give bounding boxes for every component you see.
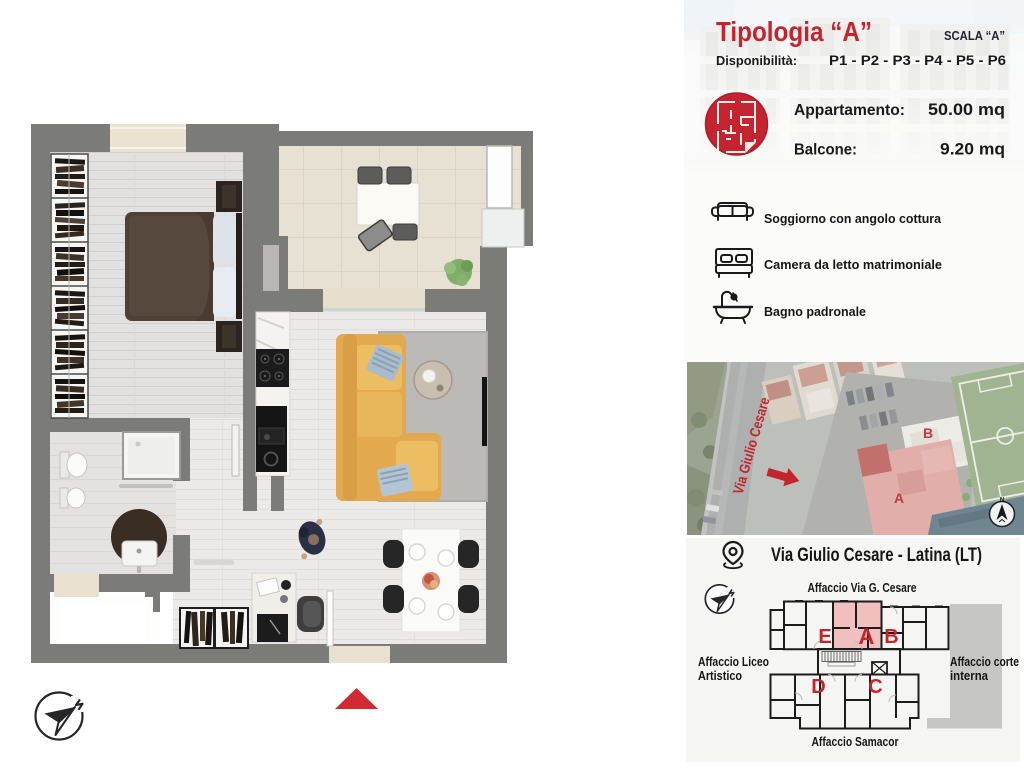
svg-text:A: A [894,490,904,506]
svg-text:Appartamento:: Appartamento: [794,102,905,119]
svg-text:Disponibilità:: Disponibilità: [716,54,797,68]
svg-text:Affaccio Liceo: Affaccio Liceo [698,654,769,669]
svg-text:50.00 mq: 50.00 mq [928,100,1005,119]
svg-text:Soggiorno con angolo cottura: Soggiorno con angolo cottura [764,211,942,226]
svg-text:interna: interna [950,668,989,683]
svg-text:Via Giulio Cesare - Latina (LT: Via Giulio Cesare - Latina (LT) [771,545,982,566]
svg-text:B: B [923,425,933,441]
svg-text:Affaccio corte: Affaccio corte [950,654,1019,669]
svg-text:Bagno padronale: Bagno padronale [764,304,866,319]
svg-text:Artistico: Artistico [698,668,742,683]
svg-text:Balcone:: Balcone: [794,142,857,159]
svg-text:Tipologia “A”: Tipologia “A” [716,16,872,47]
svg-text:E: E [818,626,831,648]
svg-text:Affaccio Via G. Cesare: Affaccio Via G. Cesare [808,581,917,595]
svg-text:Camera da letto matrimoniale: Camera da letto matrimoniale [764,257,942,272]
svg-text:N: N [1000,498,1004,504]
svg-text:P1 - P2 - P3 - P4 - P5 - P6: P1 - P2 - P3 - P4 - P5 - P6 [829,53,1007,68]
svg-text:SCALA “A”: SCALA “A” [944,29,1005,43]
svg-text:Affaccio Samacor: Affaccio Samacor [812,734,899,749]
svg-text:B: B [884,626,898,648]
svg-text:D: D [811,676,825,698]
svg-text:9.20 mq: 9.20 mq [940,140,1005,159]
svg-text:A: A [859,624,875,649]
svg-text:C: C [868,676,882,698]
